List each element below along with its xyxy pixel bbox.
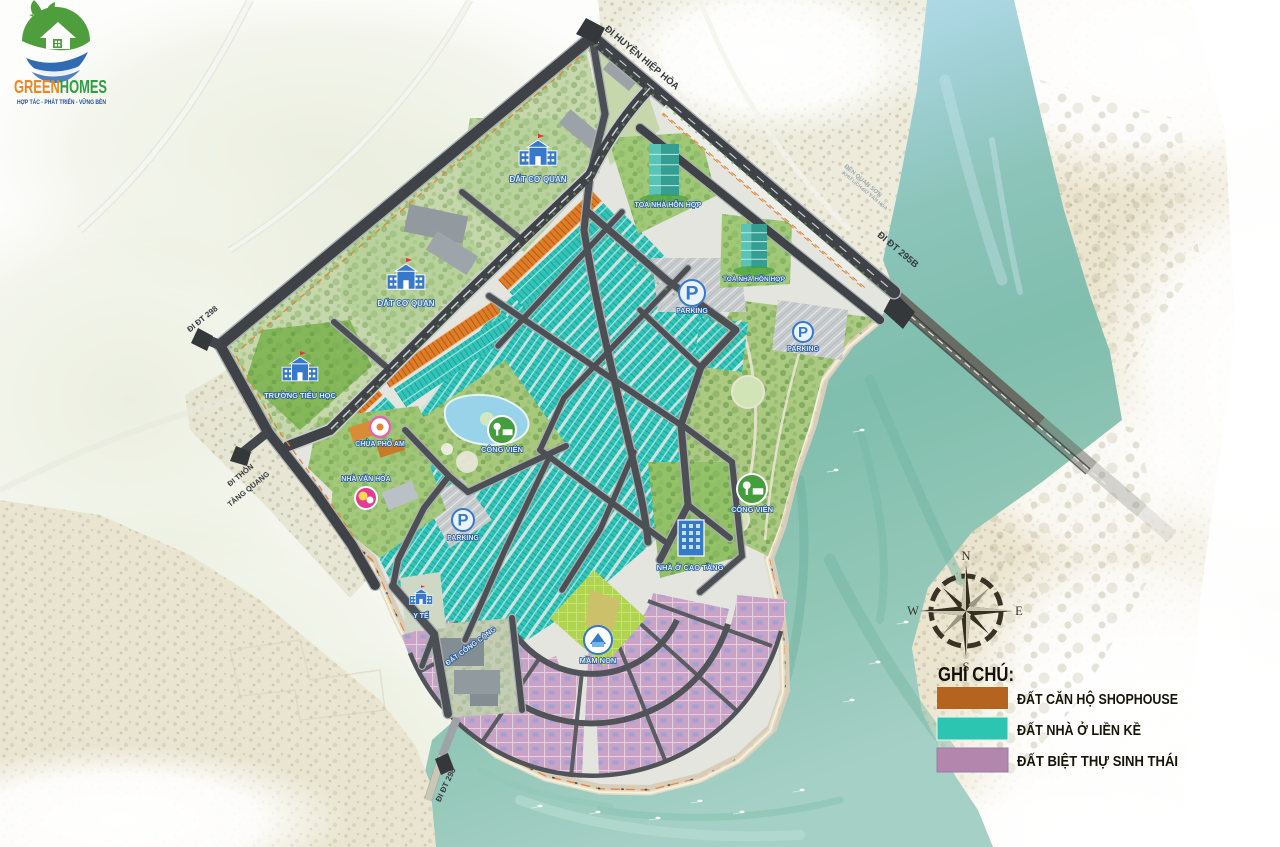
svg-text:GHI CHÚ:: GHI CHÚ:	[938, 662, 1014, 686]
svg-text:ĐẤT BIỆT THỰ SINH THÁI: ĐẤT BIỆT THỰ SINH THÁI	[1017, 752, 1178, 770]
svg-text:E: E	[1015, 604, 1023, 618]
svg-text:ĐẤT CĂN HỘ SHOPHOUSE: ĐẤT CĂN HỘ SHOPHOUSE	[1017, 690, 1178, 708]
svg-text:ĐẤT NHÀ Ở LIỀN KỀ: ĐẤT NHÀ Ở LIỀN KỀ	[1017, 721, 1141, 739]
svg-text:GREENHOMES: GREENHOMES	[14, 76, 107, 97]
svg-text:N: N	[961, 549, 970, 563]
svg-text:W: W	[907, 604, 919, 618]
svg-text:HỢP TÁC - PHÁT TRIỂN - VỮNG BỀ: HỢP TÁC - PHÁT TRIỂN - VỮNG BỀN	[17, 99, 106, 106]
